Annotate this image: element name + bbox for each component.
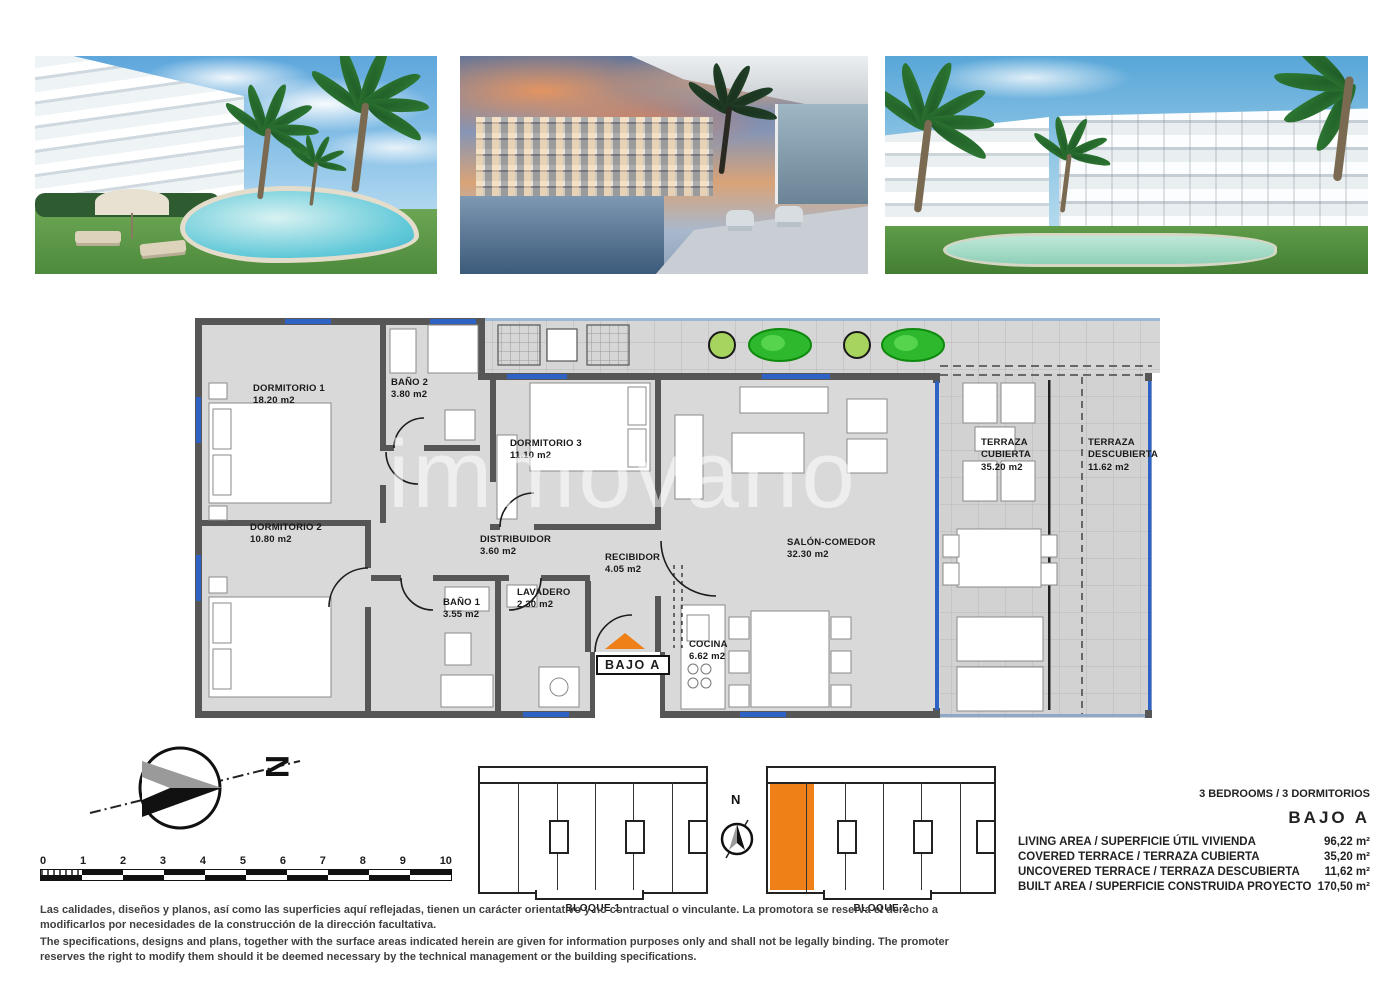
room-label-dormitorio-1: DORMITORIO 118.20 m2 [253, 383, 325, 408]
photo-terrace-sunset [460, 56, 868, 274]
scale-numbers: 01 23 45 67 89 10 [40, 855, 452, 867]
site-north-label: N [731, 792, 740, 807]
room-label-bano-1: BAÑO 13.55 m2 [443, 597, 480, 622]
room-label-distribuidor: DISTRIBUIDOR3.60 m2 [480, 534, 551, 559]
site-north-compass: N [714, 790, 760, 870]
parasol [95, 189, 169, 215]
glass-wall [775, 104, 868, 204]
unit-specifications: 3 BEDROOMS / 3 DORMITORIOS BAJO A LIVING… [1018, 788, 1370, 895]
scale-bar-strip [40, 869, 452, 881]
room-label-salon-comedor: SALÓN-COMEDOR32.30 m2 [787, 537, 876, 562]
room-label-cocina: COCINA6.62 m2 [689, 639, 728, 664]
terrace-chair [726, 210, 754, 226]
room-label-terraza-cubierta: TERRAZA CUBIERTA35.20 m2 [981, 437, 1047, 474]
terrace-chair [775, 206, 803, 222]
spec-row: BUILT AREA / SUPERFICIE CONSTRUIDA PROYE… [1018, 880, 1370, 895]
highlighted-unit [770, 784, 814, 890]
disclaimer-spanish: Las calidades, diseños y planos, así com… [40, 903, 970, 932]
floor-plan-drawing [195, 315, 1160, 728]
unit-name: BAJO A [1018, 808, 1370, 828]
room-label-dormitorio-2: DORMITORIO 210.80 m2 [250, 522, 322, 547]
block-1-diagram: BLOQUE 1 [478, 766, 708, 914]
room-label-lavadero: LAVADERO2.30 m2 [517, 587, 571, 612]
bedrooms-line: 3 BEDROOMS / 3 DORMITORIOS [1018, 788, 1370, 800]
apartment-building [476, 117, 713, 195]
skylights [498, 325, 629, 365]
spec-row: COVERED TERRACE / TERRAZA CUBIERTA35,20 … [1018, 850, 1370, 865]
floor-plan: DORMITORIO 118.20 m2 BAÑO 23.80 m2 DORMI… [195, 315, 1160, 728]
room-label-bano-2: BAÑO 23.80 m2 [391, 377, 428, 402]
legal-disclaimer: Las calidades, diseños y planos, así com… [40, 903, 970, 967]
spec-row: LIVING AREA / SUPERFICIE ÚTIL VIVIENDA96… [1018, 835, 1370, 850]
room-label-terraza-descubierta: TERRAZA DESCUBIERTA11.62 m2 [1088, 437, 1154, 474]
block-2-diagram: BLOQUE 2 [766, 766, 996, 914]
north-arrow-compass: N [88, 733, 303, 841]
room-label-dormitorio-3: DORMITORIO 311.10 m2 [510, 438, 582, 463]
swimming-pool [460, 196, 664, 274]
brochure-page: DORMITORIO 118.20 m2 BAÑO 23.80 m2 DORMI… [0, 0, 1400, 983]
sun-lounger [75, 231, 121, 243]
swimming-pool [943, 233, 1277, 267]
unit-label-box: BAJO A [596, 655, 670, 675]
north-label: N [259, 755, 295, 778]
disclaimer-english: The specifications, designs and plans, t… [40, 935, 970, 964]
scale-bar: 01 23 45 67 89 10 [40, 855, 452, 881]
photo-garden-pool [35, 56, 437, 274]
photo-buildings-pool [885, 56, 1368, 274]
room-label-recibidor: RECIBIDOR4.05 m2 [605, 552, 660, 577]
spec-row: UNCOVERED TERRACE / TERRAZA DESCUBIERTA1… [1018, 865, 1370, 880]
